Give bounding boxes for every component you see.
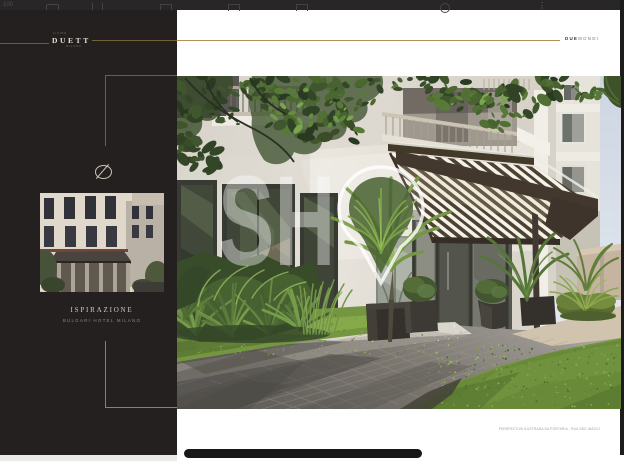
svg-text:SH: SH xyxy=(218,149,335,292)
